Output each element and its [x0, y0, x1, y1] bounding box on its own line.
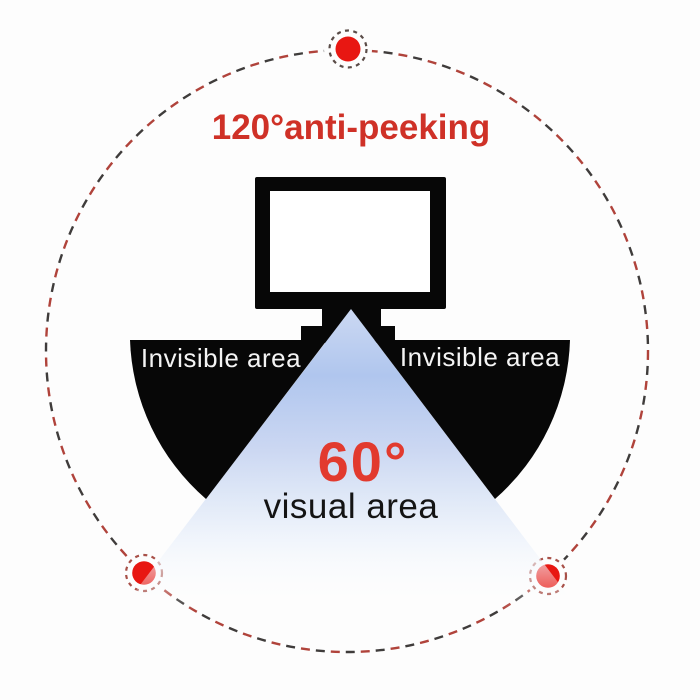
- invisible-area-label-left: Invisible area: [141, 343, 301, 373]
- anti-peeking-infographic: 120°anti-peeking Invisible area Invisibl…: [0, 0, 700, 700]
- monitor-screen: [270, 191, 430, 292]
- invisible-area-label-right: Invisible area: [400, 342, 560, 372]
- visual-angle-value: 60°: [318, 430, 409, 493]
- visual-area-label: visual area: [264, 487, 439, 526]
- marker-dot-top: [324, 25, 372, 73]
- diagram-canvas: 120°anti-peeking Invisible area Invisibl…: [0, 0, 700, 700]
- red-dot-icon: [336, 37, 361, 62]
- title: 120°anti-peeking: [212, 108, 491, 147]
